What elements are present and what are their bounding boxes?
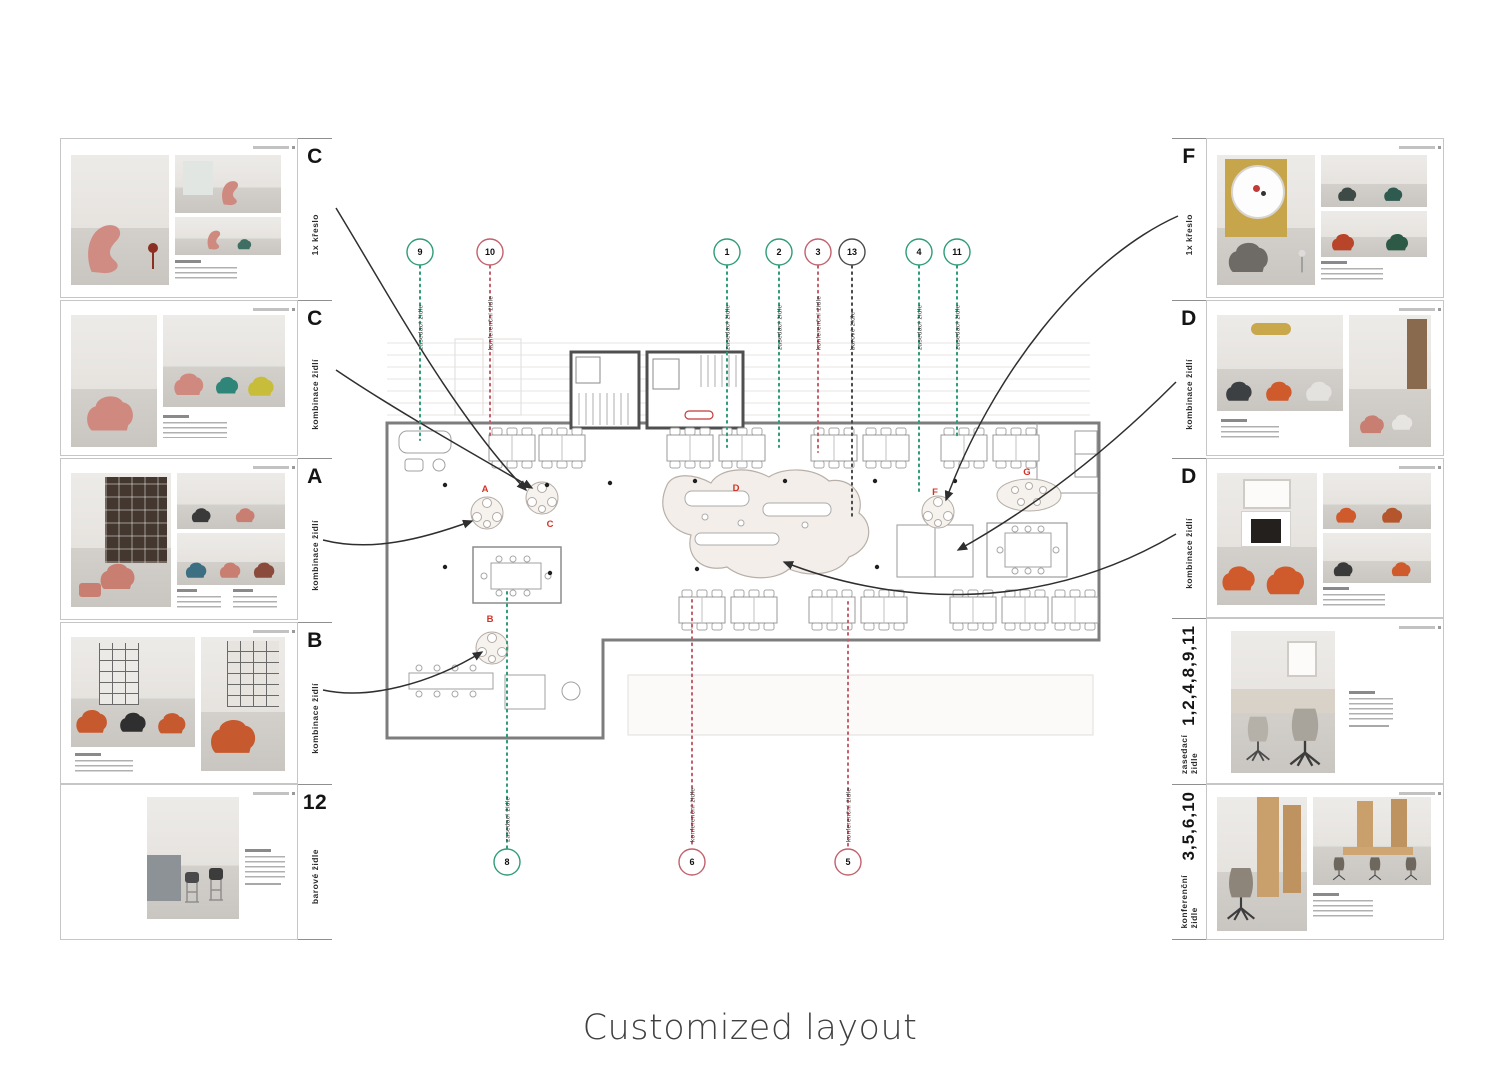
catalog-card-conference-chairs bbox=[1206, 784, 1444, 940]
floor-lamp-illustration bbox=[1295, 249, 1309, 275]
photo-lounge-scene bbox=[177, 473, 285, 529]
photo-bar-stools bbox=[147, 797, 239, 919]
fireplace-illustration bbox=[1241, 511, 1291, 547]
armchair-illustration bbox=[1265, 377, 1295, 405]
photo-interior bbox=[1349, 315, 1431, 447]
product-text-placeholder bbox=[1321, 261, 1383, 282]
side-table-illustration bbox=[145, 243, 161, 273]
card-letter: B bbox=[307, 629, 323, 653]
photo-interior bbox=[1321, 155, 1427, 207]
card-category: 1x křeslo bbox=[310, 214, 320, 255]
photo-armchairs-shelves bbox=[71, 637, 195, 747]
svg-text:10: 10 bbox=[485, 247, 495, 257]
svg-text:13: 13 bbox=[847, 247, 857, 257]
armchair-illustration bbox=[75, 705, 111, 737]
counter-illustration bbox=[147, 855, 181, 901]
armchair-illustration bbox=[1335, 505, 1359, 525]
photo-three-chairs bbox=[1217, 315, 1343, 411]
card-category: kombinace židlí bbox=[310, 683, 320, 754]
photo-chair-scene bbox=[1323, 473, 1431, 529]
armchair-illustration bbox=[119, 709, 149, 735]
armchair-illustration bbox=[1265, 561, 1309, 599]
card-index-c1: C 1x křeslo bbox=[298, 138, 332, 300]
shelf-illustration bbox=[99, 643, 139, 705]
terrace-outline bbox=[628, 675, 1093, 735]
card-letter: D bbox=[1181, 465, 1197, 489]
card-category: 1x křeslo bbox=[1184, 214, 1194, 255]
product-text-placeholder bbox=[1313, 893, 1373, 918]
armchair-illustration bbox=[235, 505, 257, 525]
photo-task-chairs bbox=[1231, 631, 1335, 773]
plan-label-c: C bbox=[547, 519, 554, 530]
window-panel bbox=[183, 161, 213, 195]
floor-plan: A B C D F G bbox=[385, 335, 1105, 750]
armchair-illustration bbox=[215, 373, 241, 397]
card-index-f: F 1x křeslo bbox=[1172, 138, 1206, 300]
card-index-conference-chairs: 3,5,6,10 konferenční židle bbox=[1172, 784, 1206, 940]
caption: Customized layout bbox=[0, 1008, 1500, 1048]
photo-conference-room bbox=[1313, 797, 1431, 885]
card-letter: C bbox=[307, 307, 323, 331]
armchair-illustration bbox=[1359, 411, 1387, 437]
wood-panel bbox=[1407, 319, 1427, 389]
cork-panel bbox=[1357, 801, 1373, 853]
photo-lounge-chair bbox=[71, 155, 169, 285]
card-header-placeholder bbox=[1399, 626, 1435, 629]
armchair-illustration bbox=[247, 373, 277, 399]
tongue-chair-illustration bbox=[83, 221, 141, 277]
swivel-chair-illustration bbox=[1401, 855, 1421, 881]
plan-label-d: D bbox=[733, 483, 740, 494]
card-category: konferenční židle bbox=[1179, 860, 1199, 929]
product-text-placeholder bbox=[175, 260, 237, 281]
svg-text:2: 2 bbox=[776, 247, 781, 257]
plan-label-g: G bbox=[1023, 467, 1030, 478]
wall-art-frame bbox=[1287, 641, 1317, 677]
card-index-d1: D kombinace židlí bbox=[1172, 300, 1206, 458]
card-header-placeholder bbox=[253, 792, 289, 795]
card-category: kombinace židlí bbox=[1184, 359, 1194, 430]
svg-text:8: 8 bbox=[504, 857, 509, 867]
plan-label-b: B bbox=[487, 614, 494, 625]
photo-lounge-shelf bbox=[71, 473, 171, 607]
card-index-b: B kombinace židlí bbox=[298, 622, 332, 784]
armchair-illustration bbox=[173, 369, 207, 399]
card-category: kombinace židlí bbox=[310, 359, 320, 430]
product-text-placeholder bbox=[1221, 419, 1279, 440]
armchair-illustration bbox=[1305, 377, 1335, 405]
plan-label-a: A bbox=[482, 484, 489, 495]
armchair-illustration bbox=[1391, 411, 1415, 433]
card-index-task-chairs: 1,2,4,8,9,11 zasedací židle bbox=[1172, 618, 1206, 784]
card-category: barové židle bbox=[310, 849, 320, 904]
swivel-chair-illustration bbox=[1329, 855, 1349, 881]
card-numbers: 3,5,6,10 bbox=[1179, 791, 1199, 860]
table-illustration bbox=[1343, 847, 1413, 855]
cork-panel bbox=[1283, 805, 1301, 893]
catalog-card-a bbox=[60, 458, 298, 620]
product-text-placeholder bbox=[245, 849, 285, 885]
svg-text:11: 11 bbox=[952, 247, 962, 257]
armchair-illustration bbox=[1383, 185, 1405, 203]
photo-chair-pair bbox=[1321, 211, 1427, 257]
lounge-g bbox=[997, 479, 1061, 511]
card-header-placeholder bbox=[253, 630, 289, 633]
swivel-chair-illustration bbox=[1283, 701, 1327, 769]
card-header-placeholder bbox=[1399, 466, 1435, 469]
photo-chair-group bbox=[177, 533, 285, 585]
photo-armchair-closeup bbox=[201, 637, 285, 771]
product-text-placeholder bbox=[1349, 691, 1393, 727]
catalog-card-c1 bbox=[60, 138, 298, 298]
armchair-illustration bbox=[253, 559, 277, 581]
armchair-illustration bbox=[1227, 237, 1273, 277]
swivel-chair-illustration bbox=[1365, 855, 1385, 881]
armchair-illustration bbox=[99, 559, 139, 593]
svg-text:9: 9 bbox=[417, 247, 422, 257]
svg-text:5: 5 bbox=[845, 857, 850, 867]
swivel-chair-illustration bbox=[1221, 861, 1261, 923]
product-text-placeholder bbox=[75, 753, 133, 774]
catalog-card-d1 bbox=[1206, 300, 1444, 456]
product-text-placeholder bbox=[163, 415, 227, 438]
armchair-illustration bbox=[1381, 505, 1405, 525]
svg-text:konferenční židle: konferenční židle bbox=[690, 788, 697, 842]
card-letter: D bbox=[1181, 307, 1197, 331]
meeting-room-g bbox=[997, 526, 1059, 574]
bar-stool-illustration bbox=[181, 865, 205, 911]
card-header-placeholder bbox=[1399, 146, 1435, 149]
card-letter: C bbox=[307, 145, 323, 169]
photo-three-chairs bbox=[163, 315, 285, 407]
photo-pink-armchair bbox=[71, 315, 157, 447]
armchair-illustration bbox=[219, 559, 243, 581]
svg-text:3: 3 bbox=[815, 247, 820, 257]
catalog-card-12 bbox=[60, 784, 298, 940]
catalog-card-c2 bbox=[60, 300, 298, 456]
card-letter: A bbox=[307, 465, 323, 489]
photo-disc-lounge bbox=[1217, 155, 1315, 285]
svg-text:zasedací židle: zasedací židle bbox=[505, 797, 512, 842]
armchair-illustration bbox=[1331, 231, 1357, 253]
svg-text:6: 6 bbox=[689, 857, 694, 867]
card-category: zasedací židle bbox=[1179, 726, 1199, 774]
svg-text:1: 1 bbox=[724, 247, 729, 257]
card-index-d2: D kombinace židlí bbox=[1172, 458, 1206, 618]
photo-fireplace-chairs bbox=[1217, 473, 1317, 605]
shelf-illustration bbox=[227, 641, 279, 707]
armchair-illustration bbox=[209, 713, 261, 759]
armchair-illustration bbox=[1385, 231, 1411, 253]
catalog-card-b bbox=[60, 622, 298, 784]
card-numbers: 1,2,4,8,9,11 bbox=[1179, 625, 1199, 726]
swivel-chair-illustration bbox=[1241, 709, 1275, 765]
card-header-placeholder bbox=[1399, 792, 1435, 795]
armchair-illustration bbox=[185, 559, 209, 581]
product-text-placeholder bbox=[1323, 587, 1385, 606]
armchair-illustration bbox=[237, 237, 253, 251]
svg-text:konferenční židle: konferenční židle bbox=[846, 788, 853, 842]
card-letter: F bbox=[1182, 145, 1195, 169]
photo-interior bbox=[175, 155, 281, 213]
product-text-placeholder bbox=[177, 589, 221, 610]
card-index-12: 12 barové židle bbox=[298, 784, 332, 940]
page: A B C D F G 9zasedací židle10konferenční… bbox=[0, 0, 1500, 1080]
stair-core bbox=[571, 352, 743, 428]
card-header-placeholder bbox=[253, 308, 289, 311]
photo-chair-scene bbox=[1323, 533, 1431, 583]
bar-stool-illustration bbox=[205, 861, 229, 911]
shelf-illustration bbox=[105, 477, 167, 563]
photo-swivel-chair-cork bbox=[1217, 797, 1307, 931]
card-header-placeholder bbox=[253, 466, 289, 469]
card-category: kombinace židlí bbox=[310, 520, 320, 591]
card-header-placeholder bbox=[253, 146, 289, 149]
card-category: kombinace židlí bbox=[1184, 518, 1194, 589]
ottoman-illustration bbox=[79, 583, 101, 597]
photo-interior bbox=[175, 217, 281, 255]
product-text-placeholder bbox=[233, 589, 277, 610]
wall-art-frame bbox=[1243, 479, 1291, 509]
plan-label-f: F bbox=[932, 487, 938, 498]
armchair-illustration bbox=[191, 505, 213, 525]
card-index-a: A kombinace židlí bbox=[298, 458, 332, 622]
armchair-illustration bbox=[1391, 559, 1413, 579]
svg-text:4: 4 bbox=[916, 247, 921, 257]
catalog-card-task-chairs bbox=[1206, 618, 1444, 784]
catalog-card-f bbox=[1206, 138, 1444, 298]
wall-art bbox=[1251, 323, 1291, 335]
tongue-chair-illustration bbox=[219, 179, 249, 207]
armchair-illustration bbox=[1337, 185, 1359, 203]
armchair-illustration bbox=[1333, 559, 1355, 579]
armchair-illustration bbox=[157, 709, 189, 737]
catalog-card-d2 bbox=[1206, 458, 1444, 618]
armchair-illustration bbox=[1221, 561, 1259, 595]
armchair-illustration bbox=[85, 389, 139, 437]
wall-disc-illustration bbox=[1231, 165, 1285, 219]
tongue-chair-illustration bbox=[205, 229, 229, 251]
card-letter: 12 bbox=[303, 791, 327, 815]
armchair-illustration bbox=[1225, 377, 1255, 405]
card-header-placeholder bbox=[1399, 308, 1435, 311]
card-index-c2: C kombinace židlí bbox=[298, 300, 332, 458]
pod-f bbox=[922, 496, 954, 528]
